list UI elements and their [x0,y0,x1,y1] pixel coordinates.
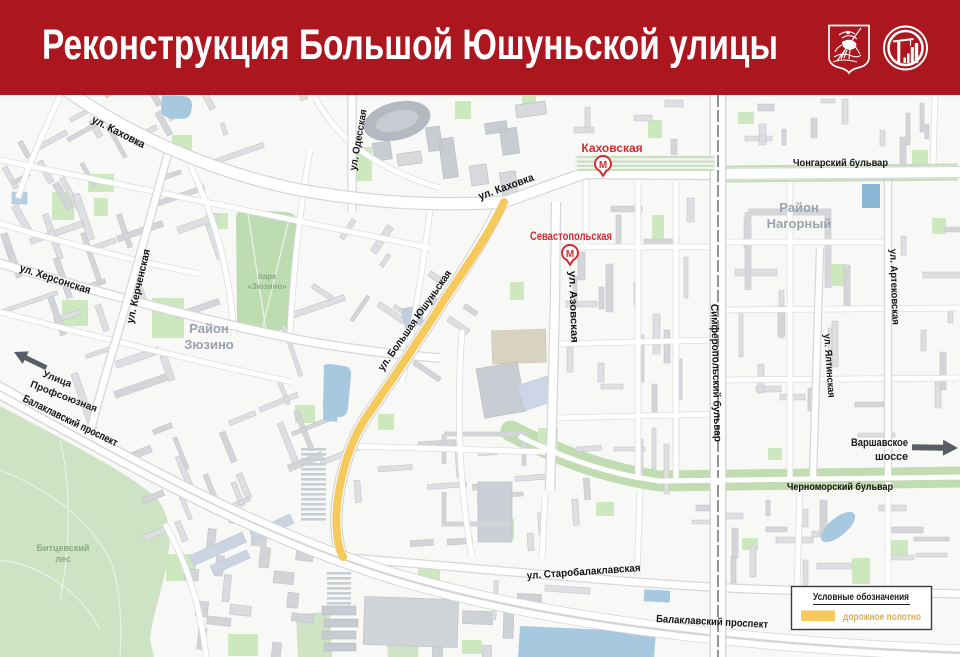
svg-text:шоссе: шоссе [875,451,908,463]
svg-text:Битцевский: Битцевский [37,543,90,553]
svg-text:Черноморский бульвар: Черноморский бульвар [787,481,893,493]
svg-text:Нагорный: Нагорный [767,216,832,231]
svg-text:Варшавское: Варшавское [851,437,908,449]
svg-text:дорожное полотно: дорожное полотно [843,611,921,623]
svg-text:Каховская: Каховская [581,141,642,155]
svg-text:Зюзино: Зюзино [184,337,234,352]
svg-text:Чонгарский бульвар: Чонгарский бульвар [793,157,888,169]
svg-text:ул. Азовская: ул. Азовская [566,271,581,343]
svg-text:Условные обозначения: Условные обозначения [813,591,909,603]
svg-text:лес: лес [55,554,71,564]
svg-text:Район: Район [779,200,819,215]
svg-text:парк: парк [258,272,277,281]
svg-text:Район: Район [189,321,229,336]
svg-text:«Зюзино»: «Зюзино» [247,282,287,291]
svg-text:М: М [599,160,607,171]
svg-text:Севастопольская: Севастопольская [530,229,612,243]
svg-text:М: М [566,249,574,260]
svg-text:Реконструкция Большой Юшуньско: Реконструкция Большой Юшуньской улицы [42,22,778,69]
